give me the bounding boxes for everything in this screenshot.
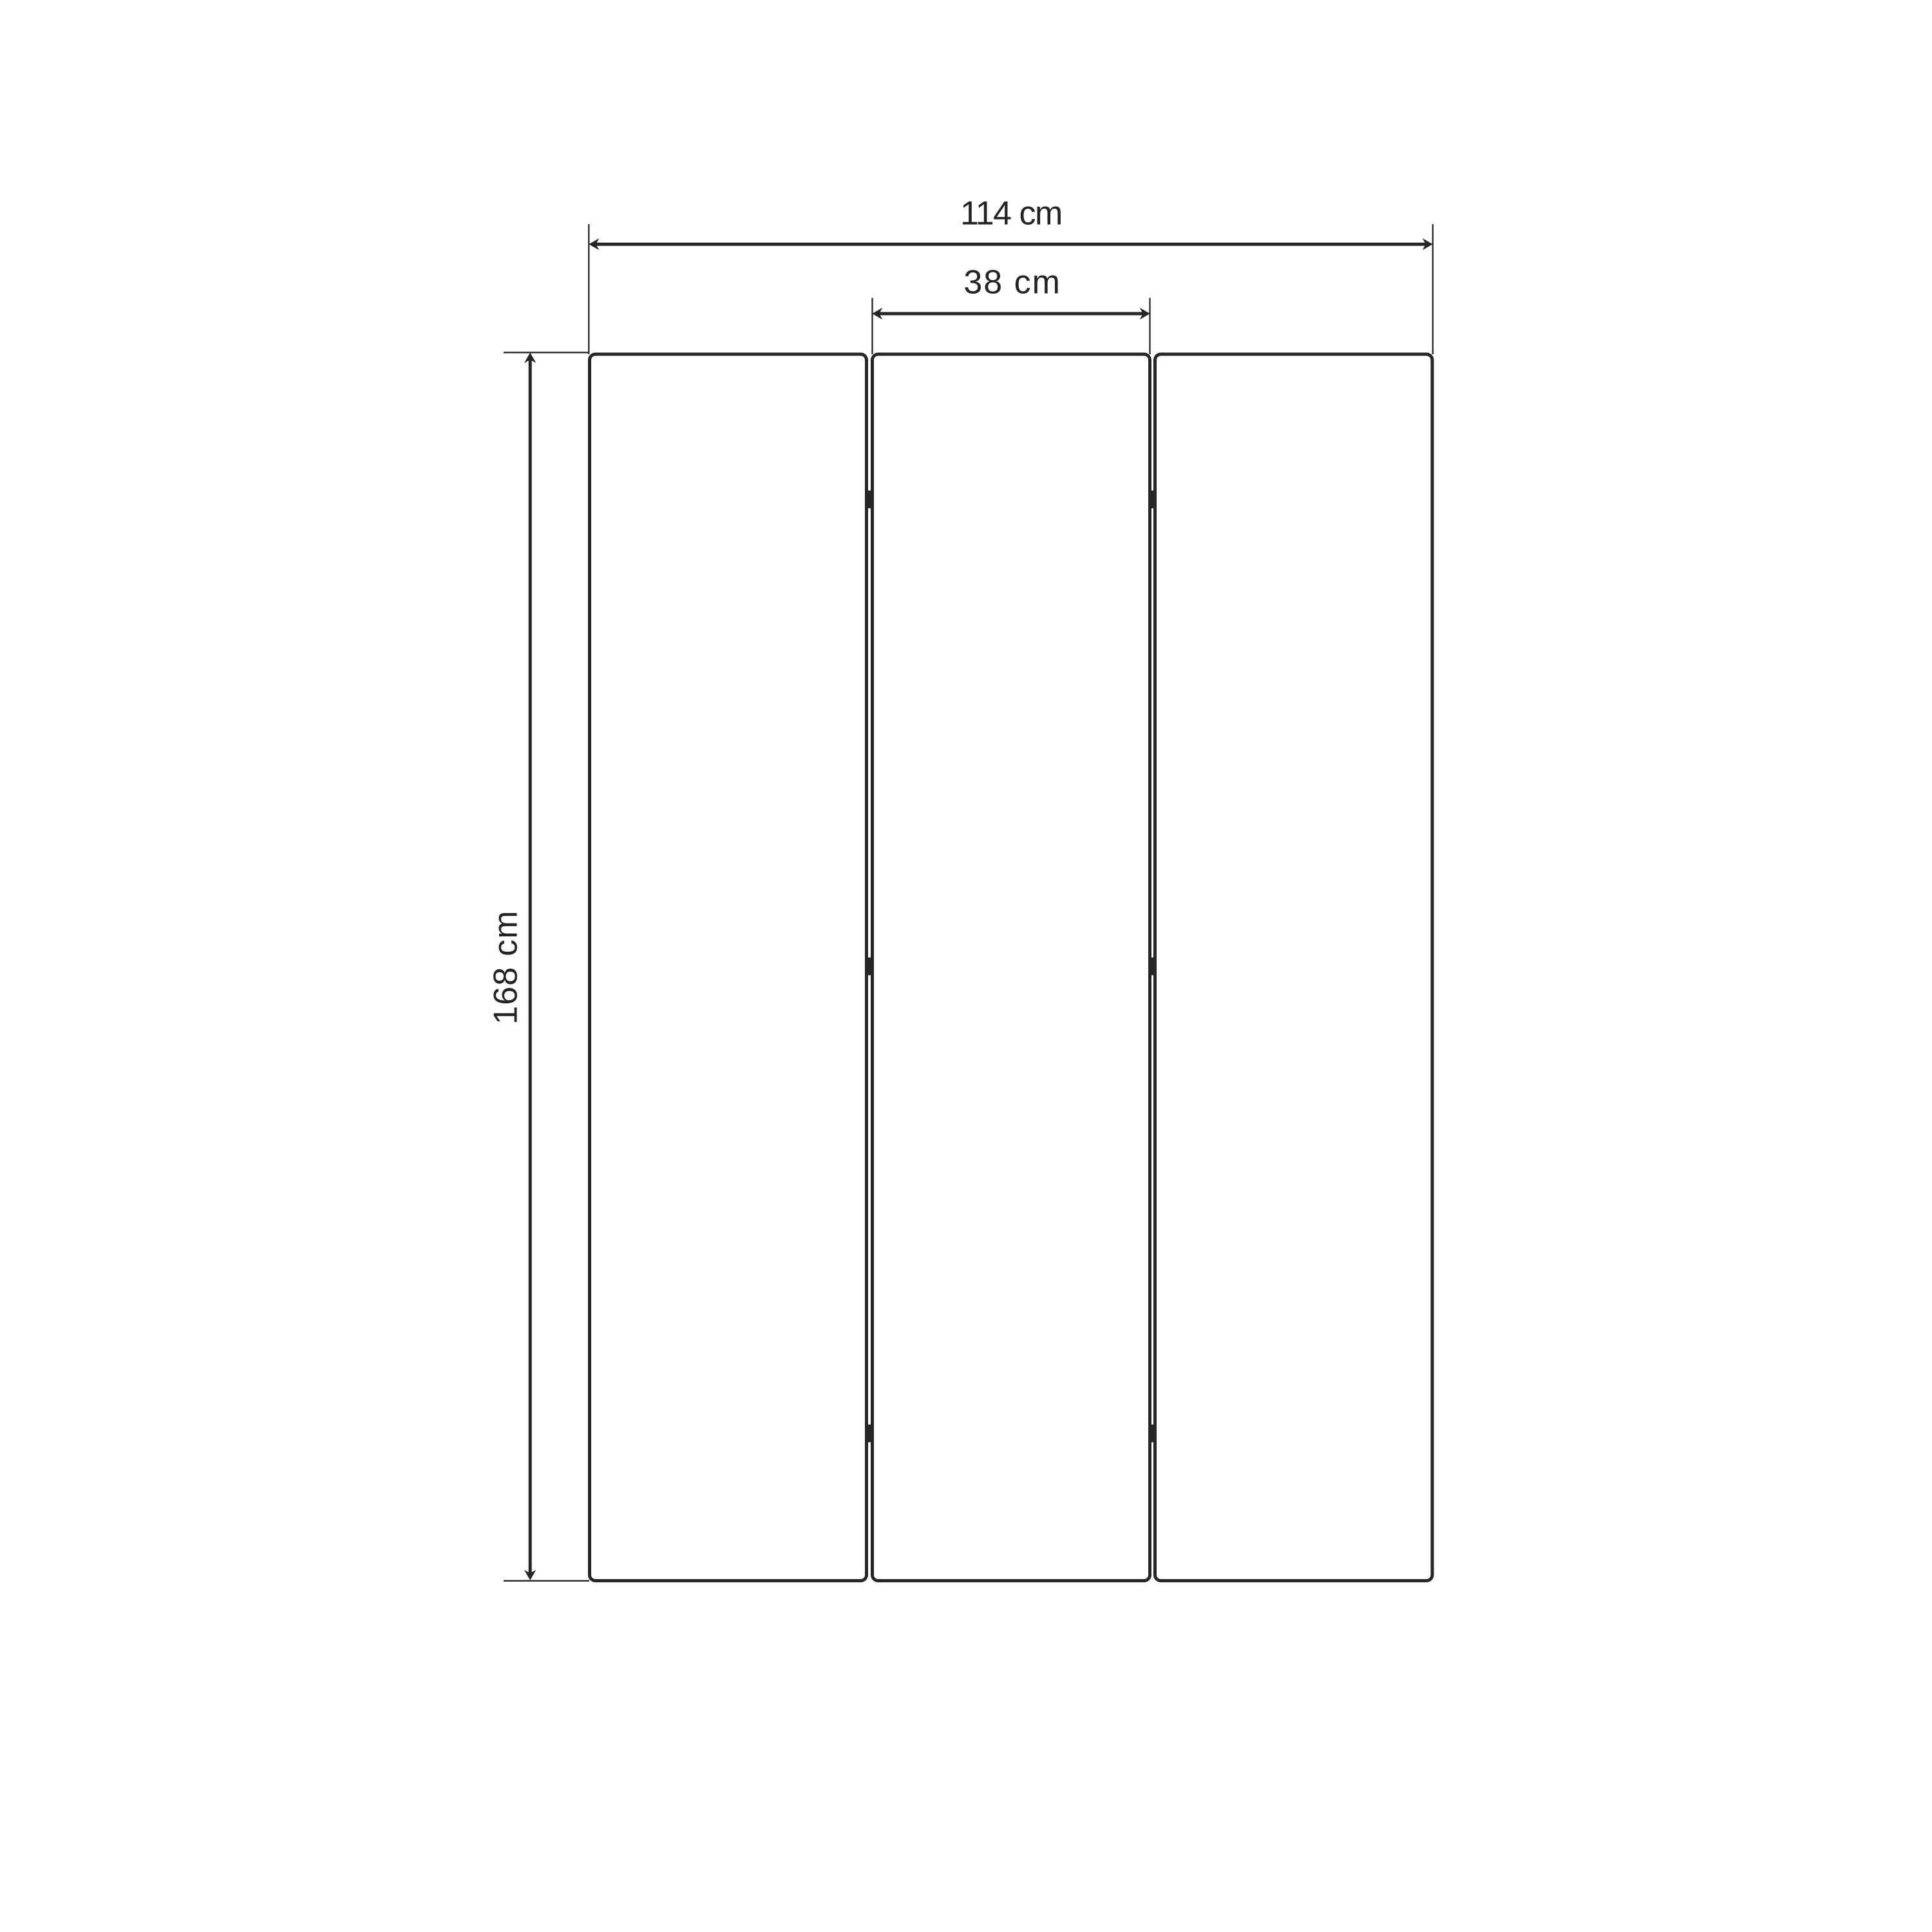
svg-text:168 cm: 168 cm bbox=[488, 910, 525, 1025]
svg-text:38 cm: 38 cm bbox=[963, 263, 1061, 301]
svg-text:114 cm: 114 cm bbox=[960, 195, 1062, 232]
